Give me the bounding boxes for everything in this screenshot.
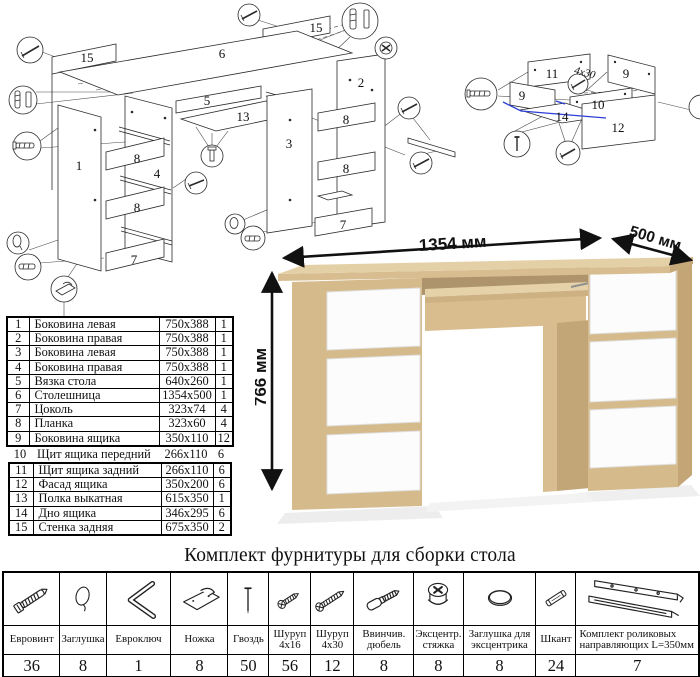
wood-dowel-icon	[537, 574, 575, 624]
part-name: Столешница	[29, 389, 159, 403]
cam-cap-icon	[477, 574, 523, 624]
part-label: 7	[131, 252, 138, 267]
part-qty: 12	[215, 431, 233, 446]
part-name: Боковина ящика	[29, 431, 159, 446]
part-num: 2	[7, 332, 29, 346]
part-num: 14	[9, 506, 33, 520]
part-label: 1	[76, 158, 83, 173]
table-row: 5Вязка стола640x2601	[7, 374, 233, 388]
drawer-assembly-diagram: 11 9 9 10 14 12 4x30	[455, 10, 700, 225]
part-size: 350x200	[161, 478, 213, 492]
hardware-qty: 50	[228, 655, 269, 677]
part-size: 1354x500	[159, 389, 215, 403]
part-name: Боковина левая	[29, 317, 159, 332]
right-pedestal	[588, 257, 692, 491]
part-size: 266x110	[161, 463, 213, 478]
part-size: 750x388	[159, 332, 215, 346]
table-row: 8Планка323x604	[7, 417, 233, 431]
part-num: 10	[8, 448, 32, 461]
part-num: 12	[9, 478, 33, 492]
screw-4x16-icon	[271, 574, 309, 624]
hex-key-icon	[116, 574, 162, 624]
hardware-label: Комплект роликовых направляющих L=350мм	[576, 626, 699, 655]
confirmat-screw-icon	[9, 574, 55, 624]
hardware-label: Шуруп 4x30	[311, 626, 354, 655]
part-qty: 6	[213, 478, 231, 492]
hardware-qty: 36	[3, 655, 60, 677]
part-name: Боковина правая	[29, 332, 159, 346]
hardware-label: Гвоздь	[228, 626, 269, 655]
hardware-label: Эксцентр. стяжка	[414, 626, 463, 655]
part-label: 8	[134, 200, 141, 215]
part-label: 10	[592, 97, 605, 112]
hardware-label: Евроключ	[106, 626, 171, 655]
part-size: 750x388	[159, 346, 215, 360]
hardware-qty: 24	[536, 655, 576, 677]
screw-callout-icon	[689, 95, 700, 119]
height-dimension: 766 мм	[255, 348, 270, 406]
part-name: Щит ящика передний	[32, 448, 160, 461]
part-num: 1	[7, 317, 29, 332]
part-qty: 4	[215, 403, 233, 417]
table-row: 2Боковина правая750x3881	[7, 332, 233, 346]
part-size: 675x350	[161, 520, 213, 535]
table-row: 15Стенка задняя675x3502	[9, 520, 231, 535]
part-name: Планка	[29, 417, 159, 431]
part-label: 4	[154, 166, 161, 181]
nail-icon	[229, 574, 267, 624]
part-label: 9	[519, 88, 526, 103]
part-label: 8	[343, 112, 350, 127]
hardware-label: Заглушка	[60, 626, 106, 655]
part-num: 15	[9, 520, 33, 535]
part-size: 350x110	[159, 431, 215, 446]
hardware-table: Евровинт Заглушка Евроключ Ножка Гвоздь …	[2, 571, 700, 677]
part-name: Цоколь	[29, 403, 159, 417]
table-row: 14Дно ящика346x2956	[9, 506, 231, 520]
table-row: 7Цоколь323x744	[7, 403, 233, 417]
part-label: 12	[612, 120, 625, 135]
part-name: Щит ящика задний	[33, 463, 161, 478]
part-name: Дно ящика	[33, 506, 161, 520]
part-size: 323x74	[159, 403, 215, 417]
hardware-label: Заглушка для эксцентрика	[463, 626, 536, 655]
dowel-pair-callout-icon	[9, 86, 37, 114]
hardware-label-row: Евровинт Заглушка Евроключ Ножка Гвоздь …	[3, 626, 699, 655]
cap-icon	[62, 574, 104, 624]
part-num: 9	[7, 431, 29, 446]
part-label: 6	[219, 46, 226, 61]
part-size: 750x388	[159, 317, 215, 332]
table-row: 6Столешница1354x5001	[7, 389, 233, 403]
part-qty: 1	[215, 374, 233, 388]
screw-callout-icon	[17, 37, 43, 63]
hardware-title: Комплект фурнитуры для сборки стола	[0, 545, 700, 567]
part-name: Вязка стола	[29, 374, 159, 388]
part-label: 2	[358, 75, 365, 90]
hardware-label: Шкант	[536, 626, 576, 655]
hardware-qty: 1	[106, 655, 171, 677]
hardware-icon-row	[3, 572, 699, 626]
left-pedestal	[292, 278, 422, 510]
table-row: 9Боковина ящика350x11012	[7, 431, 233, 446]
part-label: 3	[286, 136, 293, 151]
part-name: Стенка задняя	[33, 520, 161, 535]
part-num: 4	[7, 360, 29, 374]
parts-table-upper: 1Боковина левая750x3881 2Боковина правая…	[6, 316, 234, 447]
hardware-label: Ввинчив. дюбель	[354, 626, 414, 655]
part-label: 5	[204, 93, 211, 108]
part-qty: 2	[213, 520, 231, 535]
hardware-qty: 56	[269, 655, 311, 677]
part-size: 640x260	[159, 374, 215, 388]
dowel-pair-callout-icon	[342, 3, 378, 39]
part-qty: 1	[215, 346, 233, 360]
part-num: 5	[7, 374, 29, 388]
part-name: Полка выкатная	[33, 492, 161, 506]
part-label: 11	[546, 66, 559, 81]
table-row: 4Боковина правая750x3881	[7, 360, 233, 374]
part-label: 15	[310, 20, 323, 35]
part-qty: 1	[215, 389, 233, 403]
table-row: 10Щит ящика передний266x1106	[8, 448, 230, 461]
drawer-slides-icon	[582, 574, 692, 624]
table-row: 11Щит ящика задний266x1106	[9, 463, 231, 478]
part-name: Фасад ящика	[33, 478, 161, 492]
part-num: 3	[7, 346, 29, 360]
part-label: 13	[237, 109, 250, 124]
part-label: 8	[343, 161, 350, 176]
part-name: Боковина правая	[29, 360, 159, 374]
part-qty: 6	[213, 506, 231, 520]
part-qty: 1	[215, 360, 233, 374]
hardware-label: Ножка	[171, 626, 228, 655]
hardware-label: Шуруп 4x16	[269, 626, 311, 655]
table-row: 12Фасад ящика350x2006	[9, 478, 231, 492]
part-label: 9	[623, 66, 630, 81]
table-row: 13Полка выкатная615x3501	[9, 492, 231, 506]
assembly-sheet: 15 6 15 5 13 1 4 8 8 7 3 2 8 8 7	[0, 0, 700, 677]
hardware-qty-row: 36 8 1 8 50 56 12 8 8 8 24 7	[3, 655, 699, 677]
part-num: 7	[7, 403, 29, 417]
hardware-qty: 12	[311, 655, 354, 677]
keyboard-tray	[422, 266, 590, 492]
parts-table-lower: 11Щит ящика задний266x1106 12Фасад ящика…	[8, 462, 232, 536]
part-label: 14	[556, 109, 570, 124]
table-row: 3Боковина левая750x3881	[7, 346, 233, 360]
part-name: Боковина левая	[29, 346, 159, 360]
hardware-qty: 8	[354, 655, 414, 677]
part-qty: 1	[215, 332, 233, 346]
desk-render: 1354 мм 500 мм 766 мм	[255, 225, 700, 545]
cam-lock-icon	[416, 574, 460, 624]
hardware-qty: 8	[171, 655, 228, 677]
part-size: 615x350	[161, 492, 213, 506]
part-size: 323x60	[159, 417, 215, 431]
part-size: 266x110	[160, 448, 212, 461]
screw-in-dowel-icon	[361, 574, 407, 624]
table-row: 1Боковина левая750x3881	[7, 317, 233, 332]
part-size: 750x388	[159, 360, 215, 374]
screw-4x30-icon	[312, 574, 352, 624]
parts-table: 1Боковина левая750x3881 2Боковина правая…	[6, 316, 234, 536]
hardware-qty: 8	[60, 655, 106, 677]
width-dimension: 1354 мм	[418, 232, 487, 255]
part-qty: 6	[213, 463, 231, 478]
part-qty: 1	[215, 317, 233, 332]
part-label: 15	[81, 50, 94, 65]
hardware-qty: 7	[576, 655, 699, 677]
hardware-qty: 8	[463, 655, 536, 677]
part-qty: 6	[212, 448, 230, 461]
foot-glide-icon	[176, 574, 222, 624]
part-qty: 4	[215, 417, 233, 431]
part-num: 13	[9, 492, 33, 506]
part-num: 11	[9, 463, 33, 478]
hardware-label: Евровинт	[3, 626, 60, 655]
part-size: 346x295	[161, 506, 213, 520]
part-num: 6	[7, 389, 29, 403]
hardware-qty: 8	[414, 655, 463, 677]
part-qty: 1	[213, 492, 231, 506]
parts-table-row10: 10Щит ящика передний266x1106	[8, 448, 230, 461]
part-label: 8	[134, 151, 141, 166]
part-num: 8	[7, 417, 29, 431]
